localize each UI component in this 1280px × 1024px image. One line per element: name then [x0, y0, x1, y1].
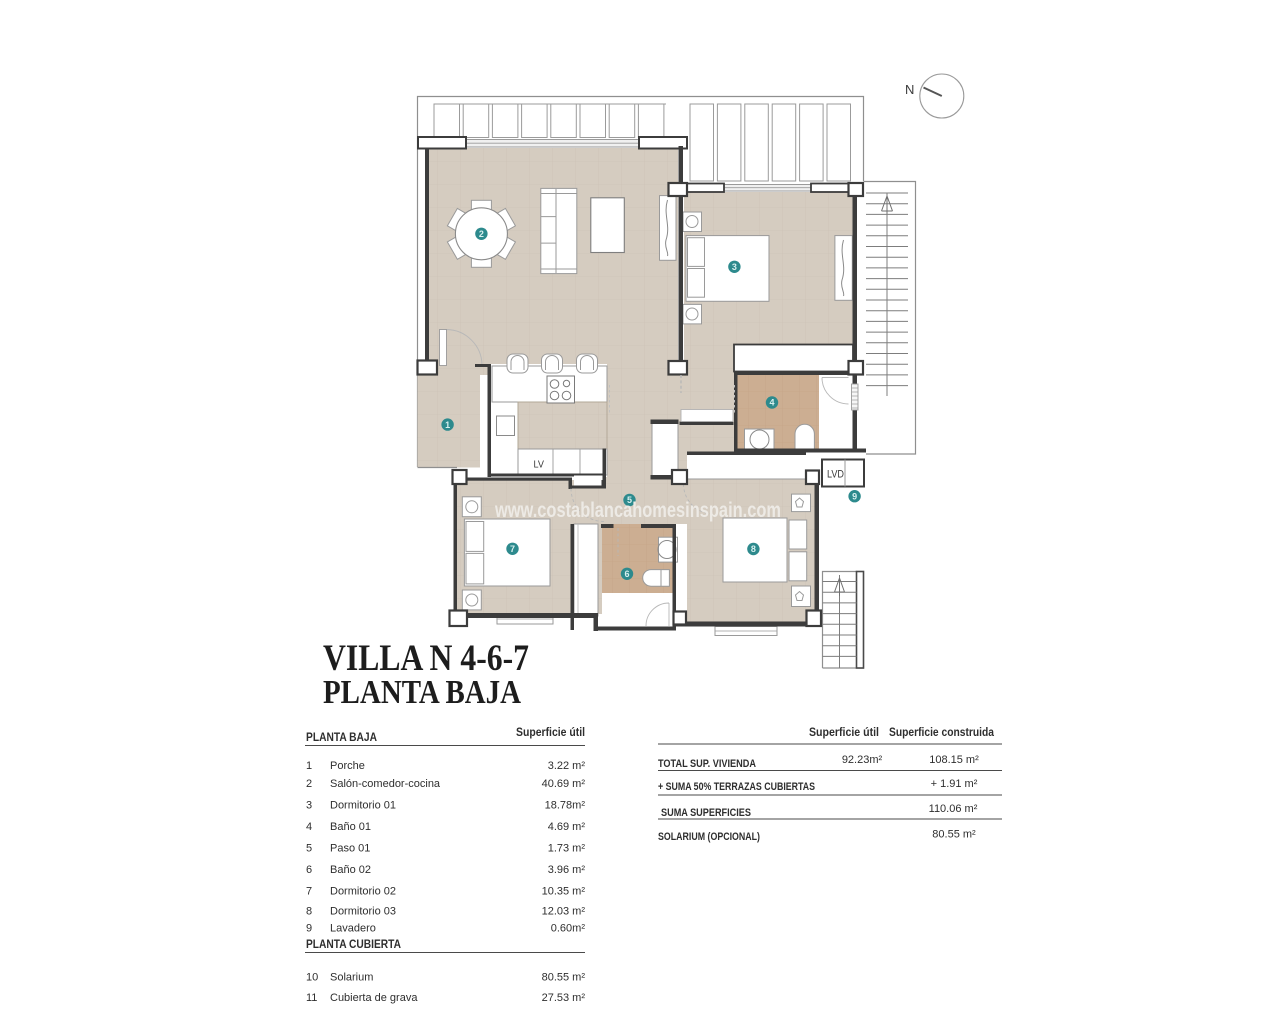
svg-text:108.15 m²: 108.15 m²: [929, 754, 979, 766]
svg-text:18.78m²: 18.78m²: [545, 800, 586, 812]
svg-text:7: 7: [510, 544, 515, 554]
svg-text:TOTAL SUP. VIVIENDA: TOTAL SUP. VIVIENDA: [658, 758, 756, 770]
svg-text:2: 2: [479, 229, 484, 239]
svg-text:10: 10: [306, 972, 318, 984]
svg-text:0.60m²: 0.60m²: [551, 923, 586, 935]
svg-text:VILLA N 4-6-7: VILLA N 4-6-7: [323, 638, 529, 679]
svg-text:8: 8: [751, 544, 756, 554]
svg-text:Paso 01: Paso 01: [330, 843, 370, 855]
svg-text:3.96 m²: 3.96 m²: [548, 864, 586, 876]
svg-text:3: 3: [306, 800, 312, 812]
svg-text:Dormitorio 03: Dormitorio 03: [330, 906, 396, 918]
svg-text:9: 9: [306, 923, 312, 935]
svg-text:SOLARIUM (OPCIONAL): SOLARIUM (OPCIONAL): [658, 831, 760, 843]
svg-text:LVD: LVD: [827, 469, 844, 481]
svg-text:3.22 m²: 3.22 m²: [548, 760, 586, 772]
svg-text:LV: LV: [534, 460, 545, 471]
svg-text:Cubierta de grava: Cubierta de grava: [330, 992, 418, 1004]
svg-text:1.73 m²: 1.73 m²: [548, 843, 586, 855]
svg-text:Dormitorio 01: Dormitorio 01: [330, 800, 396, 812]
svg-text:6: 6: [306, 864, 312, 876]
svg-text:40.69 m²: 40.69 m²: [542, 778, 586, 790]
svg-text:+ 1.91 m²: + 1.91 m²: [931, 778, 978, 790]
svg-text:6: 6: [624, 569, 629, 579]
svg-text:10.35 m²: 10.35 m²: [542, 886, 586, 898]
svg-text:Superficie construida: Superficie construida: [889, 727, 995, 739]
svg-text:3: 3: [732, 262, 737, 272]
svg-text:4: 4: [769, 398, 774, 408]
svg-text:12.03 m²: 12.03 m²: [542, 906, 586, 918]
svg-text:Superficie útil: Superficie útil: [809, 727, 879, 739]
svg-text:Dormitorio 02: Dormitorio 02: [330, 886, 396, 898]
svg-text:+ SUMA 50% TERRAZAS CUBIERTAS: + SUMA 50% TERRAZAS CUBIERTAS: [658, 781, 815, 793]
svg-text:80.55 m²: 80.55 m²: [932, 829, 976, 841]
svg-text:11: 11: [306, 992, 317, 1004]
svg-text:Salón-comedor-cocina: Salón-comedor-cocina: [330, 778, 441, 790]
svg-text:4: 4: [306, 821, 312, 833]
svg-text:PLANTA BAJA: PLANTA BAJA: [323, 674, 521, 711]
svg-text:N: N: [905, 82, 914, 97]
svg-text:7: 7: [306, 886, 312, 898]
svg-text:Superficie útil: Superficie útil: [516, 727, 585, 739]
svg-text:1: 1: [445, 420, 450, 430]
svg-text:8: 8: [306, 906, 312, 918]
svg-text:Solarium: Solarium: [330, 972, 373, 984]
svg-text:9: 9: [852, 491, 857, 501]
svg-text:PLANTA CUBIERTA: PLANTA CUBIERTA: [306, 937, 401, 951]
svg-text:2: 2: [306, 778, 312, 790]
svg-text:www.costablancahomesinspain.co: www.costablancahomesinspain.com: [494, 499, 781, 522]
svg-text:Porche: Porche: [330, 760, 365, 772]
svg-text:PLANTA BAJA: PLANTA BAJA: [306, 730, 377, 744]
svg-text:5: 5: [306, 843, 312, 855]
svg-text:27.53 m²: 27.53 m²: [542, 992, 586, 1004]
svg-text:4.69 m²: 4.69 m²: [548, 821, 586, 833]
svg-text:92.23m²: 92.23m²: [842, 754, 883, 766]
svg-text:SUMA SUPERFICIES: SUMA SUPERFICIES: [661, 807, 751, 819]
svg-text:Baño 01: Baño 01: [330, 821, 371, 833]
svg-text:1: 1: [306, 760, 312, 772]
svg-text:Baño 02: Baño 02: [330, 864, 371, 876]
svg-text:110.06 m²: 110.06 m²: [929, 803, 978, 815]
svg-text:80.55 m²: 80.55 m²: [542, 972, 586, 984]
svg-text:Lavadero: Lavadero: [330, 923, 376, 935]
